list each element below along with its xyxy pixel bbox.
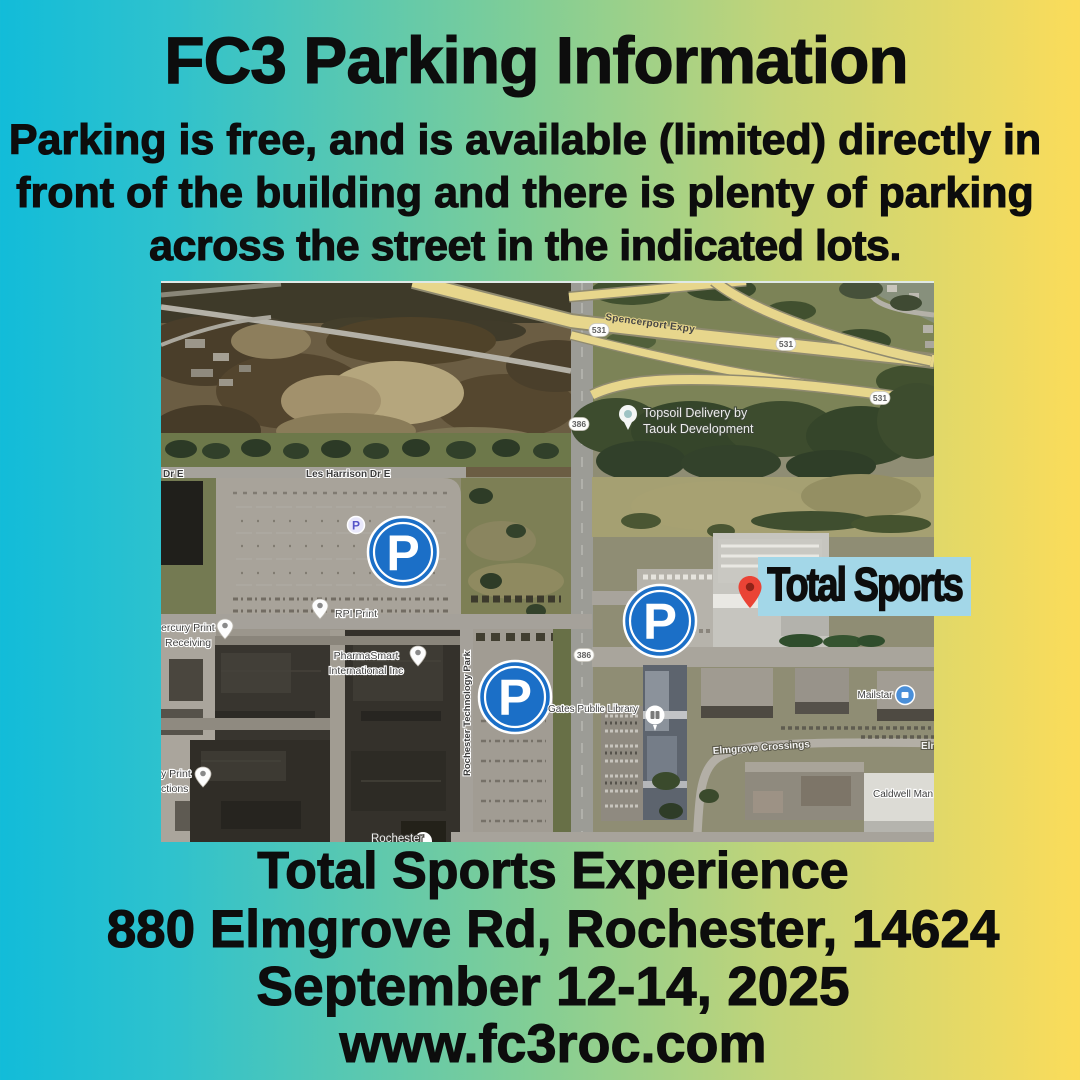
svg-text:Rochester: Rochester — [371, 833, 424, 842]
svg-text:386: 386 — [577, 650, 591, 660]
svg-text:Gates Public Library: Gates Public Library — [548, 704, 638, 715]
svg-text:531: 531 — [779, 339, 793, 349]
svg-text:International Inc: International Inc — [329, 665, 404, 677]
svg-text:Les Harrison Dr E: Les Harrison Dr E — [306, 469, 391, 480]
svg-text:Receiving: Receiving — [165, 637, 211, 649]
svg-text:ercury Print: ercury Print — [161, 622, 215, 634]
svg-text:Taouk Development: Taouk Development — [643, 422, 754, 436]
svg-text:P: P — [386, 525, 419, 581]
svg-text:RPI Print: RPI Print — [335, 608, 377, 620]
svg-text:P: P — [498, 669, 532, 726]
svg-text:531: 531 — [873, 393, 887, 403]
svg-text:ctions: ctions — [161, 783, 188, 795]
svg-text:Topsoil Delivery by: Topsoil Delivery by — [643, 406, 748, 420]
svg-text:386: 386 — [572, 419, 586, 429]
svg-text:y Print: y Print — [161, 768, 191, 780]
svg-text:P: P — [643, 593, 677, 650]
svg-text:PharmaSmart: PharmaSmart — [334, 650, 399, 662]
svg-text:Rochester Technology Park: Rochester Technology Park — [462, 650, 473, 776]
svg-text:Mailstar: Mailstar — [857, 690, 893, 701]
svg-text:Dr E: Dr E — [163, 469, 184, 480]
svg-text:531: 531 — [592, 325, 606, 335]
svg-text:P: P — [352, 519, 360, 533]
svg-text:Caldwell Man: Caldwell Man — [873, 789, 933, 800]
svg-text:Elm: Elm — [921, 741, 934, 752]
